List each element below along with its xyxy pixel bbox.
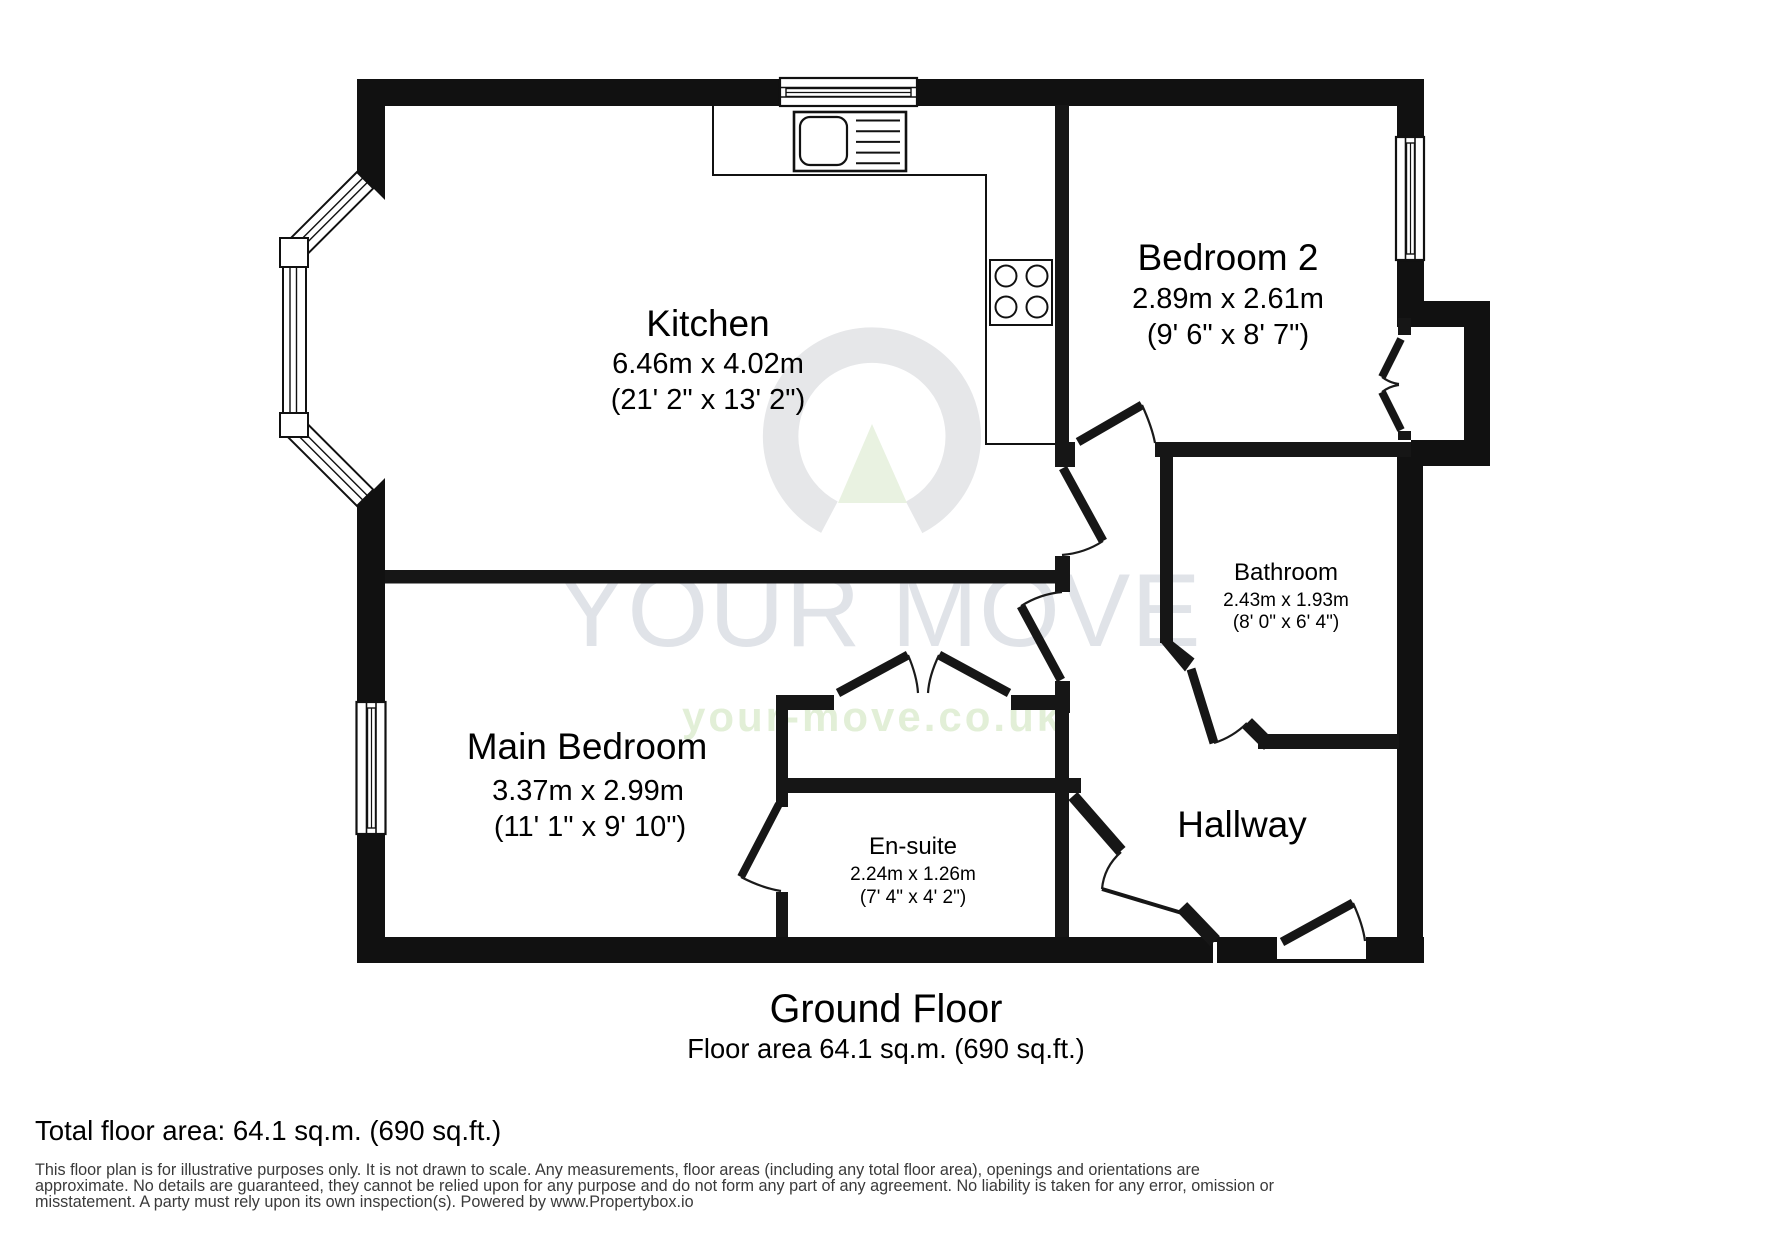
svg-text:Total floor area: 64.1 sq.m. (: Total floor area: 64.1 sq.m. (690 sq.ft.… [35, 1115, 501, 1146]
svg-text:6.46m x 4.02m: 6.46m x 4.02m [612, 348, 804, 380]
svg-text:2.43m x 1.93m: 2.43m x 1.93m [1223, 590, 1349, 611]
svg-text:(9' 6" x 8' 7"): (9' 6" x 8' 7") [1147, 319, 1309, 351]
svg-text:(11' 1" x 9' 10"): (11' 1" x 9' 10") [494, 811, 686, 843]
svg-text:Hallway: Hallway [1177, 804, 1307, 845]
svg-text:En-suite: En-suite [869, 833, 957, 860]
svg-text:2.89m x 2.61m: 2.89m x 2.61m [1132, 283, 1324, 315]
svg-text:misstatement. A party must rel: misstatement. A party must rely upon its… [35, 1193, 694, 1211]
svg-text:Ground Floor: Ground Floor [770, 987, 1003, 1031]
svg-text:Bedroom 2: Bedroom 2 [1138, 237, 1319, 278]
svg-text:(7' 4" x 4' 2"): (7' 4" x 4' 2") [860, 887, 966, 908]
svg-text:(8' 0" x 6' 4"): (8' 0" x 6' 4") [1233, 612, 1339, 633]
svg-text:2.24m x 1.26m: 2.24m x 1.26m [850, 864, 976, 885]
svg-text:your-move.co.uk: your-move.co.uk [682, 693, 1063, 740]
svg-text:Kitchen: Kitchen [646, 303, 769, 344]
svg-text:Main Bedroom: Main Bedroom [467, 726, 708, 767]
svg-text:Bathroom: Bathroom [1234, 559, 1338, 586]
svg-text:3.37m x 2.99m: 3.37m x 2.99m [492, 775, 684, 807]
svg-text:(21' 2" x 13' 2"): (21' 2" x 13' 2") [611, 384, 805, 416]
svg-text:Floor area 64.1 sq.m. (690 sq.: Floor area 64.1 sq.m. (690 sq.ft.) [687, 1033, 1085, 1064]
